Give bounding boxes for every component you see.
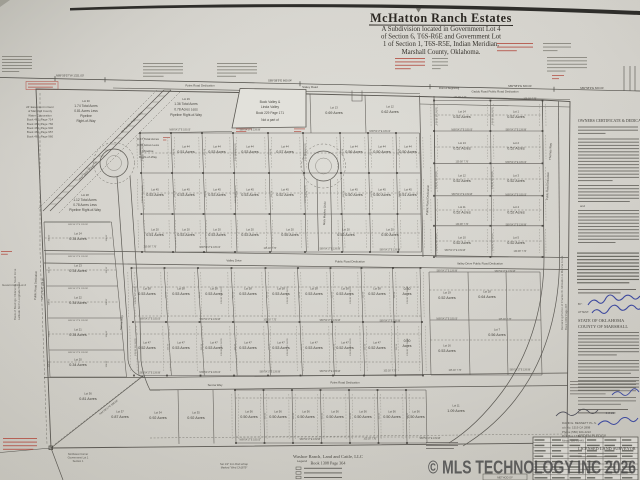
svg-text:Lot 24: Lot 24 bbox=[74, 232, 82, 236]
svg-text:Lot 58: Lot 58 bbox=[143, 287, 151, 291]
svg-text:Lot 47: Lot 47 bbox=[277, 341, 285, 345]
svg-text:Lot 13: Lot 13 bbox=[330, 106, 338, 110]
svg-text:0.55 Acres: 0.55 Acres bbox=[281, 233, 299, 237]
svg-text:139.98': 139.98' bbox=[398, 148, 400, 155]
svg-text:0.51 Acres: 0.51 Acres bbox=[399, 193, 417, 197]
svg-text:Book 462, Page 960: Book 462, Page 960 bbox=[27, 134, 54, 138]
svg-text:S89°54'17"E 139.98': S89°54'17"E 139.98' bbox=[239, 130, 261, 132]
svg-text:1 of Section 1, T6S-R5E, India: 1 of Section 1, T6S-R5E, Indian Meridian… bbox=[383, 41, 499, 48]
svg-text:139.98' S0°1'43"E: 139.98' S0°1'43"E bbox=[135, 338, 137, 356]
svg-text:0.53 Acres: 0.53 Acres bbox=[177, 193, 195, 197]
svg-text:Book 1082 Page 297: Book 1082 Page 297 bbox=[564, 303, 568, 330]
svg-text:139.98': 139.98' bbox=[365, 343, 367, 350]
svg-text:OWNERS CERTIFICATE & DEDICATIO: OWNERS CERTIFICATE & DEDICATION bbox=[578, 118, 640, 123]
svg-text:0.53 Acres: 0.53 Acres bbox=[239, 292, 257, 296]
svg-text:139.98' S0°1'43"E: 139.98' S0°1'43"E bbox=[492, 171, 494, 189]
svg-text:N89°54'17"E 105.00': N89°54'17"E 105.00' bbox=[505, 194, 527, 196]
svg-text:0.81 Acres: 0.81 Acres bbox=[79, 397, 97, 401]
svg-text:Lot 29: Lot 29 bbox=[182, 97, 190, 101]
svg-text:Public Road Dedication: Public Road Dedication bbox=[335, 260, 365, 264]
svg-text:S89°54'17"E 139.98': S89°54'17"E 139.98' bbox=[199, 319, 221, 321]
svg-text:105.00' 7.75': 105.00' 7.75' bbox=[263, 319, 277, 321]
svg-text:0.50 Acres: 0.50 Acres bbox=[269, 415, 287, 419]
svg-text:0.52 Acres: 0.52 Acres bbox=[507, 241, 525, 245]
svg-text:Staley Road: Staley Road bbox=[302, 85, 318, 89]
svg-text:139.98' S0°1'43"E: 139.98' S0°1'43"E bbox=[305, 185, 307, 203]
svg-text:Lot 45: Lot 45 bbox=[246, 188, 254, 192]
svg-text:and: and bbox=[580, 204, 585, 208]
svg-text:N89°54'17"E 105.00': N89°54'17"E 105.00' bbox=[451, 129, 473, 131]
svg-text:Thomas Way: Thomas Way bbox=[548, 142, 553, 160]
svg-text:0.50 Acres: 0.50 Acres bbox=[354, 415, 372, 419]
svg-text:Lot 45: Lot 45 bbox=[213, 188, 221, 192]
svg-text:Lot 37: Lot 37 bbox=[116, 410, 124, 414]
svg-text:108.00': 108.00' bbox=[106, 330, 108, 337]
svg-text:139.98': 139.98' bbox=[332, 291, 334, 298]
svg-text:139.98': 139.98' bbox=[396, 343, 398, 350]
svg-text:Lot 20: Lot 20 bbox=[213, 228, 221, 232]
svg-text:COUNTY OF MARSHALL: COUNTY OF MARSHALL bbox=[578, 324, 628, 329]
svg-text:N89°54'17"E 105.00': N89°54'17"E 105.00' bbox=[369, 131, 391, 133]
svg-text:139.98' S0°1'43"E: 139.98' S0°1'43"E bbox=[221, 286, 223, 304]
svg-text:S89°54'17"E 139.98': S89°54'17"E 139.98' bbox=[379, 320, 401, 322]
svg-text:139.98': 139.98' bbox=[371, 190, 373, 197]
svg-text:Lot 13: Lot 13 bbox=[458, 141, 466, 145]
svg-text:Lot 23: Lot 23 bbox=[74, 264, 82, 268]
svg-text:N89°54'17"E 105.00': N89°54'17"E 105.00' bbox=[199, 372, 221, 374]
svg-text:Not a part of: Not a part of bbox=[261, 118, 279, 122]
svg-text:Lot 12: Lot 12 bbox=[386, 105, 394, 109]
svg-text:0.53 Acres: 0.53 Acres bbox=[208, 233, 226, 237]
svg-text:139.98' S0°1'43"E: 139.98' S0°1'43"E bbox=[287, 338, 289, 356]
svg-text:Lot 2: Lot 2 bbox=[513, 141, 519, 145]
svg-text:139.98': 139.98' bbox=[271, 190, 273, 197]
svg-text:Lot 45: Lot 45 bbox=[404, 188, 412, 192]
svg-text:139.98': 139.98' bbox=[205, 190, 207, 197]
svg-text:Pipeline: Pipeline bbox=[80, 114, 92, 118]
svg-text:165.00': 165.00' bbox=[322, 412, 324, 419]
svg-text:Lot 7: Lot 7 bbox=[494, 328, 500, 332]
svg-text:S89°54'17"E 139.98': S89°54'17"E 139.98' bbox=[505, 130, 527, 132]
svg-text:McHatton Ranch Estates: McHatton Ranch Estates bbox=[370, 11, 512, 25]
svg-text:S89°54'17"E 139.98': S89°54'17"E 139.98' bbox=[505, 224, 527, 226]
svg-text:0.78 Acres Less: 0.78 Acres Less bbox=[174, 108, 198, 112]
svg-text:0.69 Acres: 0.69 Acres bbox=[325, 111, 343, 115]
svg-text:S89°54'17"E 139.98': S89°54'17"E 139.98' bbox=[319, 320, 341, 322]
svg-text:Lot 44: Lot 44 bbox=[213, 145, 221, 149]
svg-text:Lot 20: Lot 20 bbox=[342, 228, 350, 232]
svg-text:Lot 16: Lot 16 bbox=[443, 344, 451, 348]
svg-text:139.98' S0°1'43"E: 139.98' S0°1'43"E bbox=[221, 338, 223, 356]
svg-text:S89°58'9"E 660.04': S89°58'9"E 660.04' bbox=[268, 79, 292, 83]
svg-text:Lot 35: Lot 35 bbox=[192, 411, 200, 415]
svg-text:139.98': 139.98' bbox=[199, 291, 201, 298]
svg-text:0.52 Acres: 0.52 Acres bbox=[368, 292, 386, 296]
svg-text:108.00': 108.00' bbox=[106, 298, 108, 305]
svg-text:139.98' 7.76': 139.98' 7.76' bbox=[455, 162, 469, 164]
svg-text:Lot 10: Lot 10 bbox=[458, 236, 466, 240]
svg-text:139.98' S0°1'43"E: 139.98' S0°1'43"E bbox=[287, 286, 289, 304]
svg-text:Marshall County, Oklahoma.: Marshall County, Oklahoma. bbox=[402, 49, 481, 56]
svg-text:Lot 45: Lot 45 bbox=[182, 188, 190, 192]
svg-text:139.98' S0°1'43"E: 139.98' S0°1'43"E bbox=[235, 185, 237, 203]
svg-text:165.00': 165.00' bbox=[379, 412, 381, 419]
svg-text:S89°58'9"E 660.04': S89°58'9"E 660.04' bbox=[508, 84, 532, 88]
svg-text:0.52 Acres: 0.52 Acres bbox=[438, 296, 456, 300]
svg-text:165.00': 165.00' bbox=[407, 412, 409, 419]
svg-text:108.00': 108.00' bbox=[106, 234, 108, 241]
svg-text:Lot 12: Lot 12 bbox=[458, 174, 466, 178]
svg-text:0.53 Acres: 0.53 Acres bbox=[172, 346, 190, 350]
svg-text:S89°54'17"E 139.98': S89°54'17"E 139.98' bbox=[68, 256, 89, 258]
svg-text:S89°58'9"E 660.04': S89°58'9"E 660.04' bbox=[580, 86, 604, 90]
svg-text:0.62 Acres: 0.62 Acres bbox=[381, 110, 399, 114]
svg-text:108.00': 108.00' bbox=[49, 360, 51, 367]
svg-text:Lot 47: Lot 47 bbox=[310, 341, 318, 345]
svg-text:Marked "Wed CA1879": Marked "Wed CA1879" bbox=[221, 466, 248, 470]
svg-text:N89°54'17"E 105.00': N89°54'17"E 105.00' bbox=[505, 162, 527, 164]
svg-text:Lot 22: Lot 22 bbox=[74, 296, 82, 300]
svg-text:Latitude North Longitude West: Latitude North Longitude West bbox=[17, 282, 21, 320]
svg-text:165.00': 165.00' bbox=[293, 412, 295, 419]
svg-text:Section 1: Section 1 bbox=[73, 459, 84, 463]
svg-text:A Subdivision located in Gover: A Subdivision located in Government Lot … bbox=[382, 26, 502, 33]
svg-text:139.98' S0°1'43"E: 139.98' S0°1'43"E bbox=[142, 185, 144, 203]
svg-text:of Section 6, T6S-R6E and Gove: of Section 6, T6S-R6E and Government Lot bbox=[381, 34, 501, 41]
svg-text:Lot 58: Lot 58 bbox=[244, 287, 252, 291]
svg-text:0.56 Acres: 0.56 Acres bbox=[488, 333, 506, 337]
svg-text:Lot 56: Lot 56 bbox=[302, 410, 310, 414]
svg-text:S89°54'17"E 139.98': S89°54'17"E 139.98' bbox=[494, 271, 516, 273]
svg-text:139.98' 7.76': 139.98' 7.76' bbox=[143, 246, 157, 248]
svg-text:0.81 Acres Less: 0.81 Acres Less bbox=[74, 109, 98, 113]
svg-text:S89°54'17"E 139.98': S89°54'17"E 139.98' bbox=[444, 250, 466, 252]
svg-text:Lot 19: Lot 19 bbox=[443, 291, 451, 295]
svg-text:Lot 45: Lot 45 bbox=[151, 188, 159, 192]
svg-text:c/o No. 1519 CA 2898: c/o No. 1519 CA 2898 bbox=[562, 425, 591, 429]
svg-text:105.00' 7.75': 105.00' 7.75' bbox=[263, 248, 277, 250]
svg-text:0.34 Acres: 0.34 Acres bbox=[69, 363, 87, 367]
svg-text:139.98': 139.98' bbox=[233, 291, 235, 298]
svg-text:ARDEN PLEDGY: ARDEN PLEDGY bbox=[578, 434, 607, 438]
svg-text:Lot 56: Lot 56 bbox=[412, 410, 420, 414]
svg-text:139.98': 139.98' bbox=[174, 190, 176, 197]
svg-text:0.52 Acres: 0.52 Acres bbox=[453, 241, 471, 245]
svg-text:139.98' S0°1'43"E: 139.98' S0°1'43"E bbox=[407, 286, 409, 304]
svg-text:S89°54'17"E 139.98': S89°54'17"E 139.98' bbox=[68, 352, 89, 354]
svg-text:0.50 Acres: 0.50 Acres bbox=[399, 150, 417, 154]
svg-text:0.50 Acres: 0.50 Acres bbox=[407, 415, 425, 419]
svg-text:Lot 28: Lot 28 bbox=[81, 193, 89, 197]
svg-text:LICENSED LAND SURVEYOR: LICENSED LAND SURVEYOR bbox=[578, 446, 636, 451]
svg-text:0.78 Acres Less: 0.78 Acres Less bbox=[73, 203, 97, 207]
svg-text:S89°54'17"E 139.98': S89°54'17"E 139.98' bbox=[319, 371, 341, 373]
svg-text:Gaddy Road Public Road Dedi: Gaddy Road Public Road Dedication bbox=[471, 90, 518, 94]
svg-text:0.51 Acres: 0.51 Acres bbox=[177, 150, 195, 154]
svg-text:0.53 Acres: 0.53 Acres bbox=[241, 150, 259, 154]
svg-text:139.98': 139.98' bbox=[399, 190, 401, 197]
svg-text:Lot 44: Lot 44 bbox=[350, 145, 358, 149]
svg-text:0.34 Acres: 0.34 Acres bbox=[69, 237, 87, 241]
svg-text:108.00': 108.00' bbox=[49, 298, 51, 305]
svg-text:139.98' 7.76': 139.98' 7.76' bbox=[453, 97, 467, 99]
svg-text:0.50 Acres: 0.50 Acres bbox=[373, 193, 391, 197]
svg-text:139.98': 139.98' bbox=[173, 148, 175, 155]
svg-text:Lot 58: Lot 58 bbox=[341, 287, 349, 291]
svg-text:0.53 Acres: 0.53 Acres bbox=[177, 233, 195, 237]
svg-text:Pipeline: Pipeline bbox=[142, 149, 153, 153]
svg-text:Lot 58: Lot 58 bbox=[177, 287, 185, 291]
svg-text:S89°54'17"E 139.98': S89°54'17"E 139.98' bbox=[451, 194, 473, 196]
svg-text:139.98' 7.76': 139.98' 7.76' bbox=[513, 251, 527, 253]
svg-text:139.98': 139.98' bbox=[334, 343, 336, 350]
svg-text:0.52 Acres: 0.52 Acres bbox=[453, 179, 471, 183]
svg-text:139.98' S0°1'43"E: 139.98' S0°1'43"E bbox=[436, 107, 438, 125]
svg-text:ATTEST:: ATTEST: bbox=[578, 310, 589, 314]
svg-text:0.34 Acres: 0.34 Acres bbox=[69, 301, 87, 305]
svg-text:S89°54'17"E 139.98': S89°54'17"E 139.98' bbox=[379, 249, 401, 251]
svg-text:N89°54'17"E 105.00': N89°54'17"E 105.00' bbox=[139, 318, 161, 320]
svg-text:139.98' S0°1'43"E: 139.98' S0°1'43"E bbox=[350, 286, 352, 304]
svg-text:105.00' 7.75': 105.00' 7.75' bbox=[363, 438, 377, 440]
svg-text:105.00' 7.75': 105.00' 7.75' bbox=[523, 98, 537, 100]
svg-text:Point of Beginning: Point of Beginning bbox=[439, 87, 460, 90]
svg-text:0.87 Acres: 0.87 Acres bbox=[111, 415, 129, 419]
svg-text:139.98': 139.98' bbox=[201, 343, 203, 350]
svg-text:Pyles Road Dedication: Pyles Road Dedication bbox=[185, 84, 215, 88]
svg-text:S89°54'17"E 139.98': S89°54'17"E 139.98' bbox=[259, 372, 281, 374]
svg-text:Book 1308 Page 364: Book 1308 Page 364 bbox=[310, 461, 346, 466]
svg-text:Set 1/2" Iron Rod w/Cap: Set 1/2" Iron Rod w/Cap bbox=[220, 462, 248, 466]
svg-text:Northwest Corner: Northwest Corner bbox=[68, 452, 88, 456]
svg-text:Lot 20: Lot 20 bbox=[286, 228, 294, 232]
svg-text:Buck Valley &: Buck Valley & bbox=[260, 100, 281, 104]
svg-text:Lot 36: Lot 36 bbox=[84, 392, 92, 396]
svg-text:S89°54'17"E 139.98': S89°54'17"E 139.98' bbox=[319, 249, 341, 251]
svg-text:© MLS TECHNOLOGY INC 2026: © MLS TECHNOLOGY INC 2026 bbox=[428, 457, 636, 478]
svg-text:Lot 44: Lot 44 bbox=[378, 145, 386, 149]
svg-text:S89°54'17"E 139.98': S89°54'17"E 139.98' bbox=[509, 370, 531, 372]
svg-text:Lot 45: Lot 45 bbox=[281, 188, 289, 192]
svg-text:108.00': 108.00' bbox=[49, 330, 51, 337]
svg-text:Lot 47: Lot 47 bbox=[177, 341, 185, 345]
svg-text:Senna Way: Senna Way bbox=[208, 383, 223, 387]
svg-text:0.53 Acres: 0.53 Acres bbox=[138, 292, 156, 296]
svg-text:139.98' S0°1'43"E: 139.98' S0°1'43"E bbox=[436, 233, 438, 251]
svg-text:0.52 Acres: 0.52 Acres bbox=[337, 233, 355, 237]
svg-text:N89°54'17"E 105.00': N89°54'17"E 105.00' bbox=[239, 439, 261, 441]
svg-text:108.00': 108.00' bbox=[49, 266, 51, 273]
svg-text:Lot 56: Lot 56 bbox=[359, 410, 367, 414]
svg-text:N89°54'17"E 105.00': N89°54'17"E 105.00' bbox=[199, 247, 221, 249]
svg-text:0.52 Acres: 0.52 Acres bbox=[453, 210, 471, 214]
svg-text:0.52 Acres: 0.52 Acres bbox=[507, 146, 525, 150]
svg-text:139.98': 139.98' bbox=[204, 148, 206, 155]
svg-text:Lot 20: Lot 20 bbox=[74, 358, 82, 362]
svg-text:Lot 56: Lot 56 bbox=[388, 410, 396, 414]
svg-text:139.98': 139.98' bbox=[168, 343, 170, 350]
svg-text:139.98': 139.98' bbox=[235, 343, 237, 350]
svg-text:139.98' S0°1'43"E: 139.98' S0°1'43"E bbox=[135, 286, 137, 304]
svg-text:Book 229 Page 171: Book 229 Page 171 bbox=[256, 111, 284, 115]
svg-text:0.50 Acres: 0.50 Acres bbox=[345, 193, 363, 197]
svg-text:0.34 Acres: 0.34 Acres bbox=[69, 333, 87, 337]
svg-text:Lot 14: Lot 14 bbox=[458, 110, 466, 114]
svg-text:Lot 11: Lot 11 bbox=[452, 404, 460, 408]
svg-text:139.98' S0°1'43"E: 139.98' S0°1'43"E bbox=[142, 143, 144, 161]
svg-text:N89°54'17"E 105.00': N89°54'17"E 105.00' bbox=[169, 129, 191, 131]
svg-text:N89°54'17"E 105.00': N89°54'17"E 105.00' bbox=[436, 318, 458, 320]
svg-text:Valley Drive: Valley Drive bbox=[226, 259, 242, 263]
svg-text:Pipeline Right-of-Way: Pipeline Right-of-Way bbox=[170, 113, 202, 117]
svg-text:Pyles Road Dedication: Pyles Road Dedication bbox=[330, 381, 360, 385]
svg-text:0.53 Acres: 0.53 Acres bbox=[305, 346, 323, 350]
svg-text:0.50 Acres: 0.50 Acres bbox=[383, 415, 401, 419]
svg-text:0.53 Acres: 0.53 Acres bbox=[438, 349, 456, 353]
svg-text:108.00': 108.00' bbox=[49, 234, 51, 241]
svg-text:139.98': 139.98' bbox=[370, 148, 372, 155]
svg-text:S89°54'17"E 139.98': S89°54'17"E 139.98' bbox=[299, 439, 321, 441]
svg-text:S89°54'17"E 139.98': S89°54'17"E 139.98' bbox=[68, 288, 89, 290]
svg-text:Lot 56: Lot 56 bbox=[245, 410, 253, 414]
svg-text:139.98': 139.98' bbox=[269, 343, 271, 350]
svg-text:139.98': 139.98' bbox=[270, 148, 272, 155]
svg-text:139.98': 139.98' bbox=[267, 291, 269, 298]
svg-text:139.98': 139.98' bbox=[299, 291, 301, 298]
svg-text:139.98' S0°1'43"E: 139.98' S0°1'43"E bbox=[492, 107, 494, 125]
svg-text:1.36 Total Acres: 1.36 Total Acres bbox=[174, 102, 198, 106]
svg-text:Valley Drive Public Road: Valley Drive Public Road Dedication bbox=[457, 262, 503, 266]
svg-text:Lot 11: Lot 11 bbox=[458, 205, 466, 209]
svg-text:0.51 Acres: 0.51 Acres bbox=[146, 233, 164, 237]
svg-text:Lot 20: Lot 20 bbox=[386, 228, 394, 232]
svg-text:Lot 44: Lot 44 bbox=[404, 145, 412, 149]
svg-text:S89°54'17"E 139.98': S89°54'17"E 139.98' bbox=[68, 224, 89, 226]
svg-text:0.52 Acres: 0.52 Acres bbox=[507, 179, 525, 183]
svg-text:STATE OF OKLAHOMA: STATE OF OKLAHOMA bbox=[578, 318, 625, 323]
svg-text:0.52 Acres: 0.52 Acres bbox=[453, 115, 471, 119]
svg-text:1.12 Total Acres: 1.12 Total Acres bbox=[73, 198, 97, 202]
svg-text:0.53 Acres: 0.53 Acres bbox=[172, 292, 190, 296]
svg-text:139.98' 7.76': 139.98' 7.76' bbox=[455, 224, 469, 226]
svg-text:0.53 Acres: 0.53 Acres bbox=[146, 193, 164, 197]
svg-text:N89°59'57"W 1321.00': N89°59'57"W 1321.00' bbox=[56, 74, 85, 78]
svg-text:DAVID E. BENNETT P.L.S.: DAVID E. BENNETT P.L.S. bbox=[562, 421, 597, 425]
svg-text:Lot 4: Lot 4 bbox=[513, 205, 519, 209]
svg-text:0.64 Acres: 0.64 Acres bbox=[478, 295, 496, 299]
svg-text:0.50 Acres: 0.50 Acres bbox=[373, 150, 391, 154]
svg-text:Lot 47: Lot 47 bbox=[143, 341, 151, 345]
svg-text:1.09 Acres: 1.09 Acres bbox=[447, 409, 465, 413]
svg-text:Mead, OK 73449: Mead, OK 73449 bbox=[562, 439, 584, 443]
svg-text:0.53 Acres: 0.53 Acres bbox=[208, 193, 226, 197]
svg-text:0.56 Acres: 0.56 Acres bbox=[345, 150, 363, 154]
svg-text:165.00': 165.00' bbox=[265, 412, 267, 419]
svg-text:S0°12'40"E 319.00': S0°12'40"E 319.00' bbox=[40, 277, 45, 300]
svg-text:BY:: BY: bbox=[578, 302, 583, 306]
svg-text:Lot 45: Lot 45 bbox=[350, 188, 358, 192]
svg-text:0.53 Acres: 0.53 Acres bbox=[241, 233, 259, 237]
svg-text:Lot 44: Lot 44 bbox=[246, 145, 254, 149]
svg-text:0.53 Acres: 0.53 Acres bbox=[241, 193, 259, 197]
svg-text:0.34 Acres: 0.34 Acres bbox=[69, 269, 87, 273]
svg-text:Legend: Legend bbox=[297, 459, 307, 463]
svg-text:139.98': 139.98' bbox=[166, 291, 168, 298]
svg-text:0.50 Acres: 0.50 Acres bbox=[240, 415, 258, 419]
svg-text:Lot 58: Lot 58 bbox=[310, 287, 318, 291]
svg-text:Lot 44: Lot 44 bbox=[182, 145, 190, 149]
svg-text:0.52 Acres: 0.52 Acres bbox=[276, 193, 294, 197]
svg-text:Lot 21: Lot 21 bbox=[74, 328, 82, 332]
svg-text:Lot 18: Lot 18 bbox=[483, 290, 491, 294]
svg-text:P.O. Box 177: P.O. Box 177 bbox=[562, 434, 579, 438]
svg-text:S89°54'17"E 139.98': S89°54'17"E 139.98' bbox=[436, 270, 458, 272]
svg-text:139.98': 139.98' bbox=[343, 190, 345, 197]
svg-text:Lot 47: Lot 47 bbox=[341, 341, 349, 345]
svg-text:Lot 47: Lot 47 bbox=[244, 341, 252, 345]
svg-text:Lot 30: Lot 30 bbox=[82, 99, 90, 103]
svg-text:S89°54'17"E 139.98': S89°54'17"E 139.98' bbox=[139, 373, 161, 375]
svg-text:165.00': 165.00' bbox=[350, 412, 352, 419]
svg-text:Lot 56: Lot 56 bbox=[274, 410, 282, 414]
svg-text:Lot 56: Lot 56 bbox=[331, 410, 339, 414]
svg-text:S89°54'17"E 139.98': S89°54'17"E 139.98' bbox=[68, 320, 89, 322]
svg-text:0.52 Acres: 0.52 Acres bbox=[368, 346, 386, 350]
svg-text:105.00' 7.75': 105.00' 7.75' bbox=[383, 371, 397, 373]
svg-text:0.50 Acres: 0.50 Acres bbox=[297, 415, 315, 419]
svg-text:0.50 Acres: 0.50 Acres bbox=[326, 415, 344, 419]
svg-text:Lot 1: Lot 1 bbox=[513, 110, 519, 114]
svg-text:Lot 47: Lot 47 bbox=[210, 341, 218, 345]
svg-text:0.92 Acres: 0.92 Acres bbox=[149, 416, 167, 420]
svg-text:0.52 Acres: 0.52 Acres bbox=[507, 115, 525, 119]
svg-text:0.52 Acres: 0.52 Acres bbox=[507, 210, 525, 214]
svg-text:108.00': 108.00' bbox=[106, 360, 108, 367]
svg-text:Right-of-Way: Right-of-Way bbox=[76, 119, 95, 123]
svg-text:139.98' S0°1'43"E: 139.98' S0°1'43"E bbox=[492, 233, 494, 251]
svg-text:105.00' 7.75': 105.00' 7.75' bbox=[448, 370, 462, 372]
svg-text:139.98': 139.98' bbox=[301, 343, 303, 350]
svg-text:139.98' S0°1'43"E: 139.98' S0°1'43"E bbox=[407, 338, 409, 356]
svg-text:139.98' S0°1'43"E: 139.98' S0°1'43"E bbox=[436, 171, 438, 189]
svg-text:Linda Valley: Linda Valley bbox=[261, 105, 280, 109]
svg-text:105.00' 7.75': 105.00' 7.75' bbox=[498, 319, 512, 321]
svg-text:0.53 Acres: 0.53 Acres bbox=[239, 346, 257, 350]
svg-text:Lot 58: Lot 58 bbox=[373, 287, 381, 291]
svg-text:0.53 Acres: 0.53 Acres bbox=[208, 150, 226, 154]
svg-text:1.74 Total Acres: 1.74 Total Acres bbox=[74, 104, 98, 108]
svg-text:Lot 58: Lot 58 bbox=[210, 287, 218, 291]
svg-text:139.98': 139.98' bbox=[363, 291, 365, 298]
svg-text:139.98' S0°1'43"E: 139.98' S0°1'43"E bbox=[305, 143, 307, 161]
svg-text:0.50 Acres: 0.50 Acres bbox=[381, 233, 399, 237]
svg-text:Lot 20: Lot 20 bbox=[151, 228, 159, 232]
svg-text:Lot 34: Lot 34 bbox=[154, 411, 162, 415]
svg-text:Lot 47: Lot 47 bbox=[373, 341, 381, 345]
svg-text:0.92 Acres: 0.92 Acres bbox=[187, 416, 205, 420]
svg-text:Lot 45: Lot 45 bbox=[378, 188, 386, 192]
svg-text:108.00': 108.00' bbox=[106, 266, 108, 273]
svg-text:139.98': 139.98' bbox=[394, 291, 396, 298]
svg-text:Lot 20: Lot 20 bbox=[182, 228, 190, 232]
svg-text:Lot 58: Lot 58 bbox=[277, 287, 285, 291]
svg-text:0.52 Acres: 0.52 Acres bbox=[453, 146, 471, 150]
svg-text:Lot 3: Lot 3 bbox=[513, 174, 519, 178]
svg-text:139.98': 139.98' bbox=[342, 148, 344, 155]
svg-text:Lot 20: Lot 20 bbox=[246, 228, 254, 232]
svg-text:139.98' S0°1'43"E: 139.98' S0°1'43"E bbox=[350, 338, 352, 356]
svg-text:0.57 Acres: 0.57 Acres bbox=[276, 150, 294, 154]
